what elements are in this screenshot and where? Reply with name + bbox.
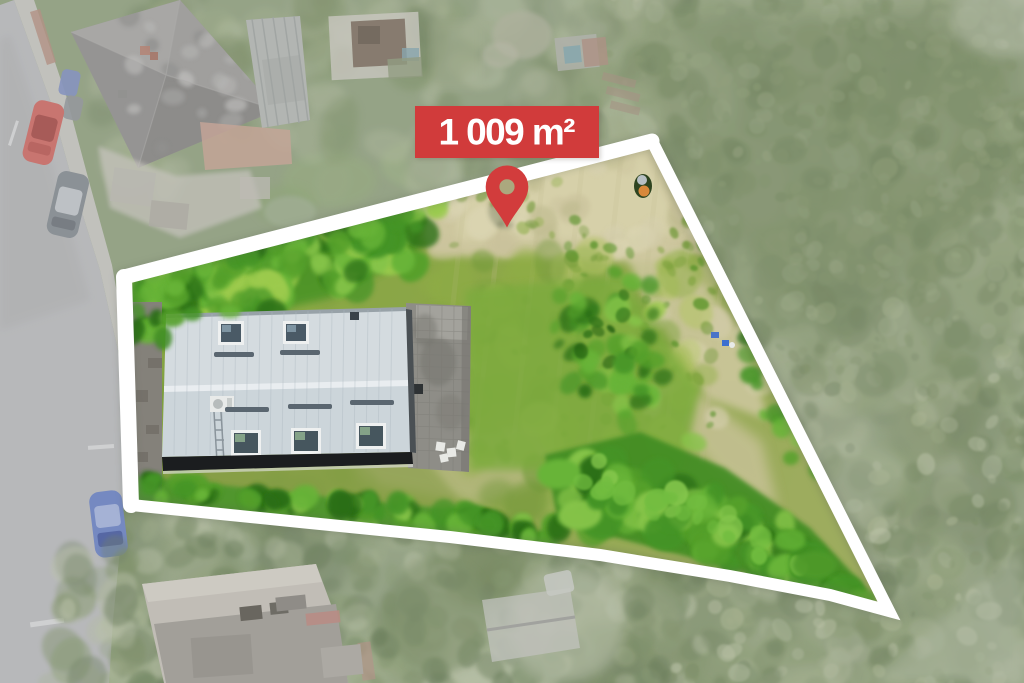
svg-text:1 009 m²: 1 009 m² — [439, 112, 576, 153]
